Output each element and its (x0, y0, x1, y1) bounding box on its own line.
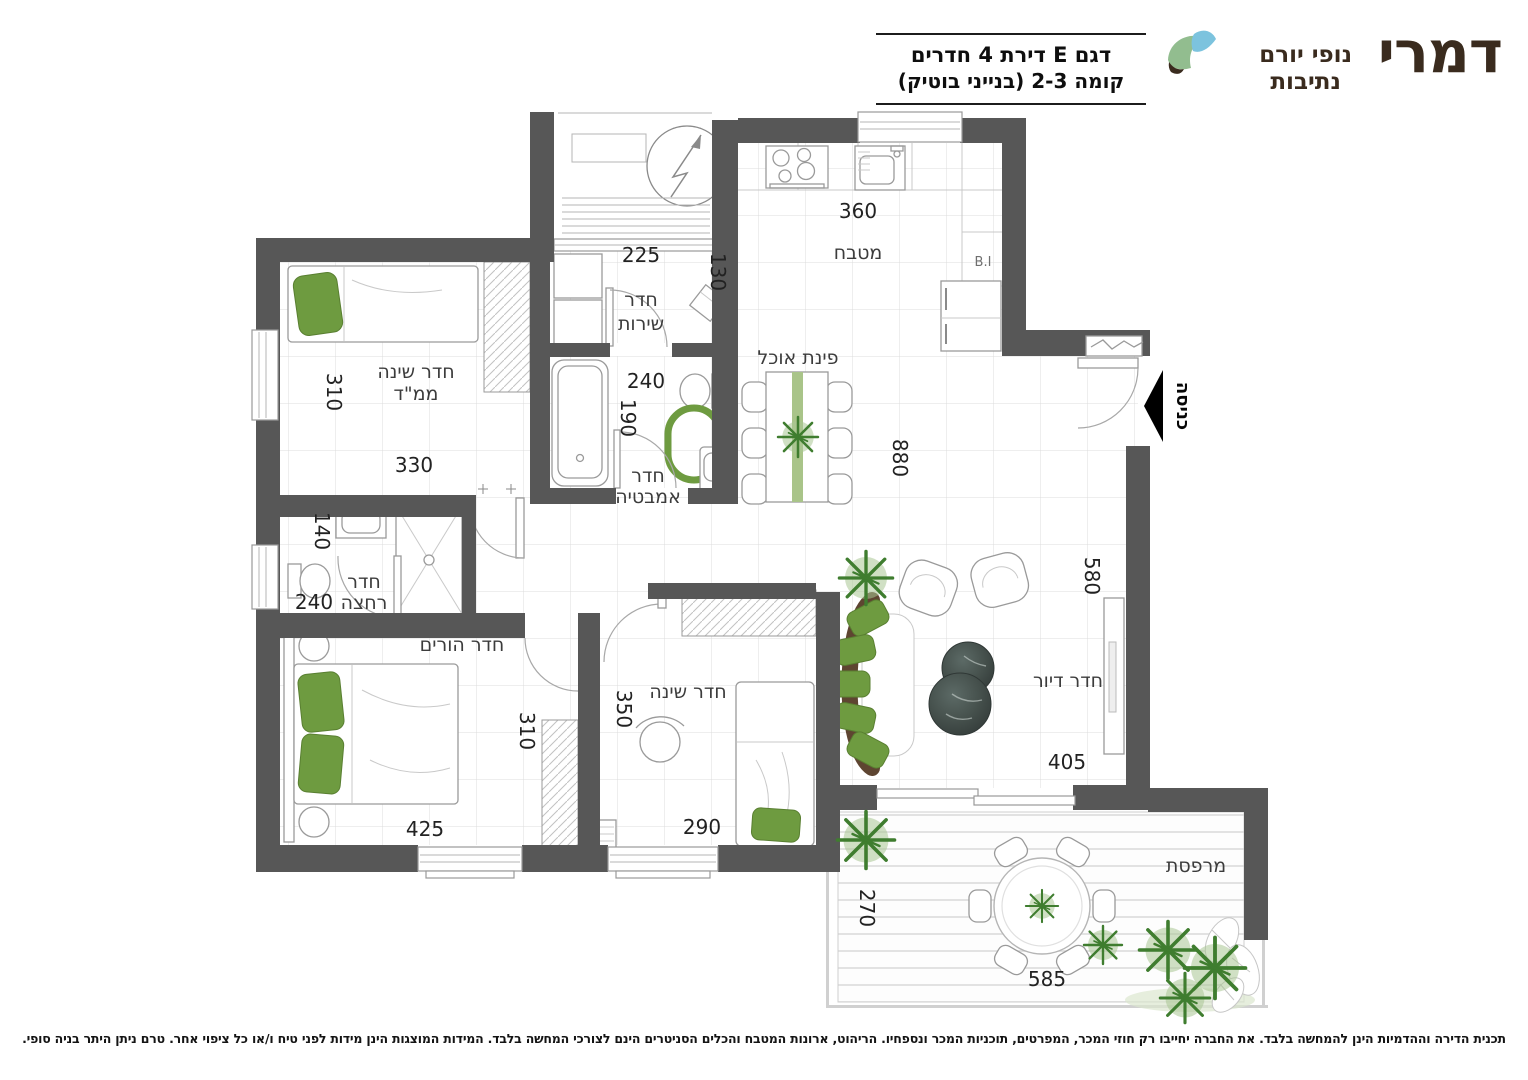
bathtub (552, 360, 608, 486)
wardrobe (484, 262, 530, 392)
label-mamad-1: חדר שינה (377, 361, 454, 383)
dim-mamad-width: 330 (395, 453, 433, 477)
dim-bath-height: 190 (616, 399, 640, 437)
label-service-2: שירות (618, 313, 664, 335)
dim-bath-width: 240 (627, 369, 665, 393)
label-bath-2: אמבטיה (615, 486, 681, 508)
shower-stall (396, 506, 462, 614)
label-service-1: חדר (624, 289, 658, 311)
entrance-arrow-icon (1144, 370, 1163, 442)
dim-balcony-height: 270 (855, 889, 879, 927)
label-kitchen: מטבח (834, 242, 883, 264)
plan-title-line2: קומה 2-3 (בנייני בוטיק) (876, 68, 1146, 94)
label-bedroom: חדר שינה (649, 681, 726, 703)
floor-plan: מטבח 360 B.I פינת אוכל 880 חדר שירות 225… (0, 0, 1528, 1080)
label-dining: פינת אוכל (758, 347, 839, 369)
dim-living-height: 580 (1080, 557, 1104, 595)
dim-dining-height: 880 (888, 439, 912, 477)
dim-wc-width: 240 (295, 590, 333, 614)
sink-icon (855, 146, 905, 190)
dim-kitchen-width: 360 (839, 199, 877, 223)
dim-parents-height: 310 (515, 712, 539, 750)
disclaimer-text: תכנית הדירה וההדמיות הינן להמחשה בלבד. א… (0, 1031, 1528, 1046)
label-parents: חדר הורים (420, 634, 505, 656)
bird-logo-icon (1166, 28, 1218, 86)
brand-sub2: נתיבות (1259, 69, 1352, 96)
label-entrance: כניסה (1172, 382, 1193, 430)
stove-icon (766, 146, 828, 188)
fridge-icon (941, 281, 1001, 351)
label-living: חדר דיור (1033, 670, 1103, 692)
label-bath-1: חדר (631, 465, 665, 487)
label-mamad-2: ממ"ד (394, 383, 439, 405)
brand-name: דמרי (1378, 22, 1502, 83)
brand-sub1: נופי יורם (1259, 42, 1352, 69)
plan-title-line1: דגם E דירת 4 חדרים (876, 42, 1146, 68)
dim-service-width: 225 (622, 243, 660, 267)
plan-title: דגם E דירת 4 חדרים קומה 2-3 (בנייני בוטי… (876, 33, 1146, 105)
label-shower-2: רחצה (341, 592, 388, 614)
dim-bedroom-height: 350 (612, 690, 636, 728)
dim-balcony-width: 585 (1028, 967, 1066, 991)
dim-living-width: 405 (1048, 750, 1086, 774)
coffee-table (929, 673, 991, 735)
dim-parents-width: 425 (406, 817, 444, 841)
label-shower-1: חדר (347, 571, 381, 593)
tv-unit (1104, 598, 1124, 754)
dim-bedroom-width: 290 (683, 815, 721, 839)
dim-service-depth: 130 (706, 253, 730, 291)
label-built-in: B.I (975, 255, 992, 270)
dim-mamad-height: 310 (322, 373, 346, 411)
brand-subtitle: נופי יורם נתיבות (1259, 42, 1352, 96)
floorplan-page: מטבח 360 B.I פינת אוכל 880 חדר שירות 225… (0, 0, 1528, 1080)
dim-wc-height: 140 (310, 512, 334, 550)
toilet-icon (680, 374, 710, 408)
brand-logo: דמרי נופי יורם נתיבות (1172, 22, 1502, 122)
label-balcony: מרפסת (1166, 855, 1226, 877)
wardrobe (542, 720, 578, 848)
